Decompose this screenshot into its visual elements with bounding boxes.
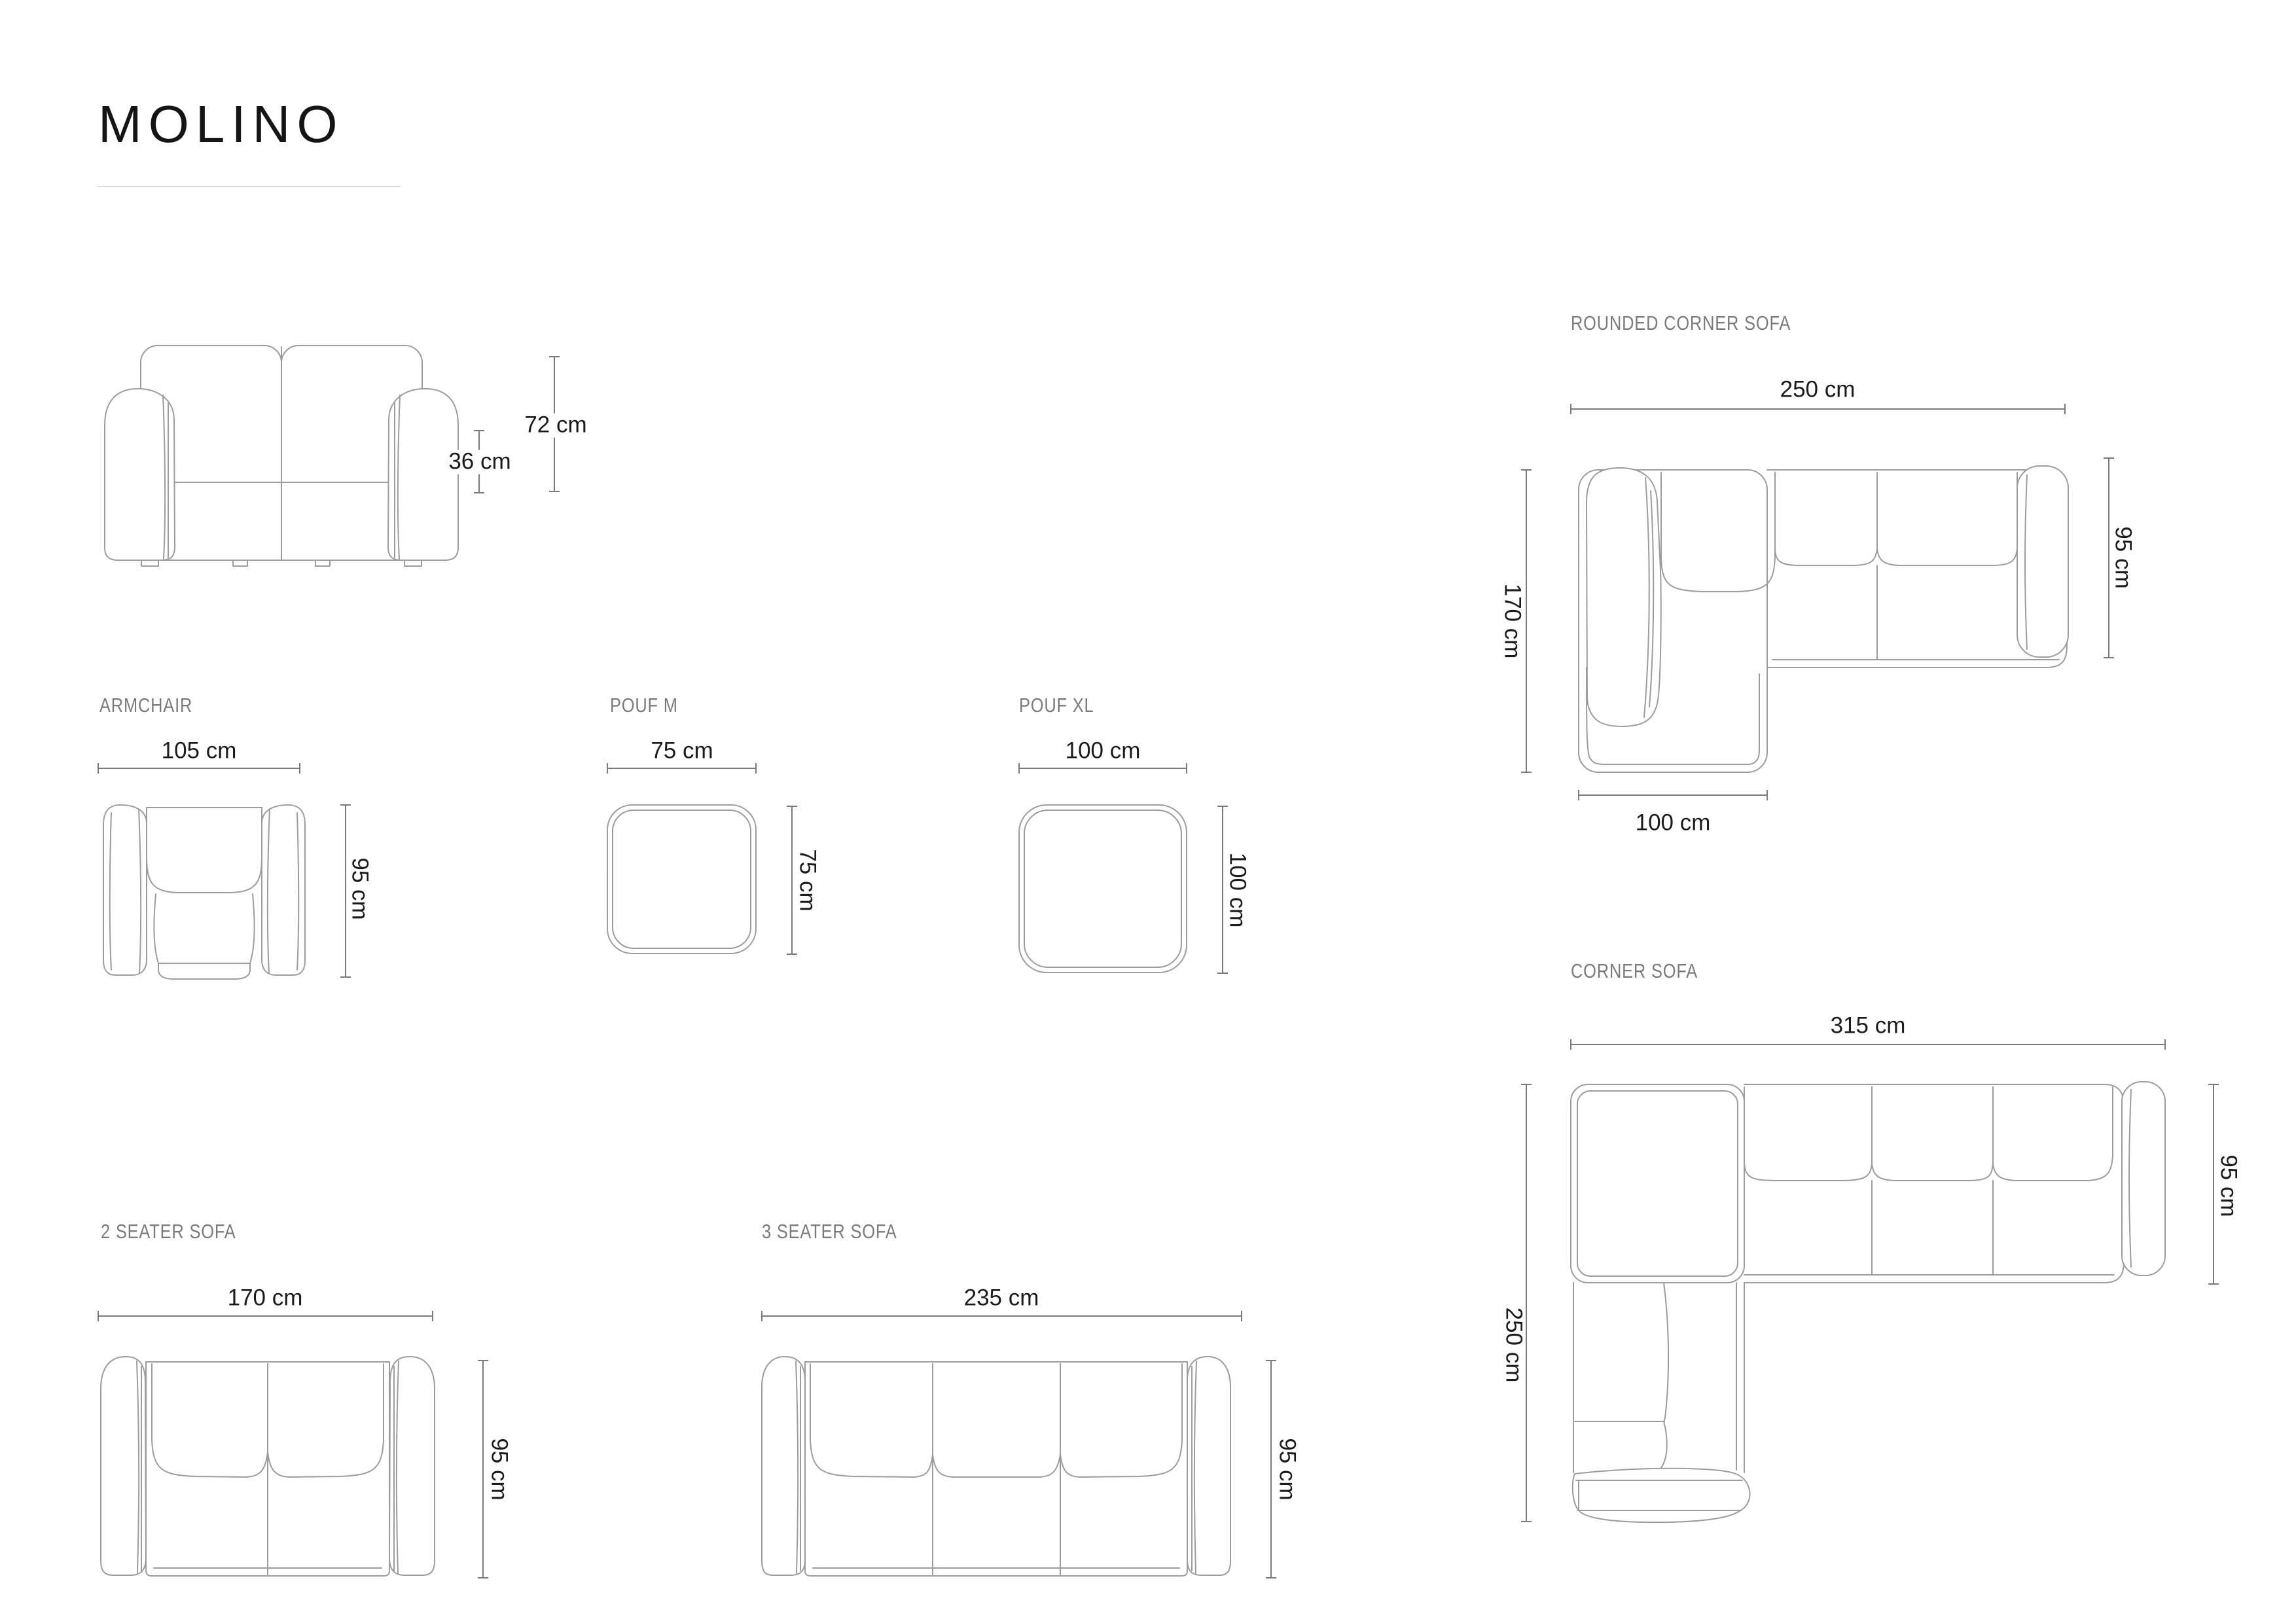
pouf-m-width-dim: 75 cm [645,740,718,764]
front-view-total-height-dim: 72 cm [519,414,592,438]
armchair-art [103,805,305,979]
page-title: MOLINO [98,98,344,151]
front-view-sofa-drawing [98,340,596,569]
two-seater-depth-dim: 95 cm [487,1434,511,1504]
three-seater-width-dim: 235 cm [959,1287,1045,1311]
title-underline [98,186,401,187]
front-view-sofa-art [105,346,458,566]
corner-sofa-side-length-dim: 250 cm [1501,1304,1526,1387]
corner-sofa-label: CORNER SOFA [1571,961,1698,981]
two-seater-sofa-label: 2 SEATER SOFA [101,1221,236,1241]
two-seater-sofa-drawing [92,1283,511,1590]
rounded-corner-sofa-chaise-length-dim: 170 cm [1500,580,1524,663]
pouf-xl-width-dim: 100 cm [1060,740,1146,764]
rounded-corner-sofa-depth-dim: 95 cm [2111,522,2135,592]
three-seater-sofa-drawing [753,1283,1296,1590]
pouf-xl-label: POUF XL [1019,695,1094,715]
pouf-m-label: POUF M [610,695,678,715]
pouf-m-dimension-lines [607,763,797,954]
spec-sheet: MOLINO 36 cm 72 cm ROUNDED CORNER SOFA [0,0,2296,1623]
corner-sofa-art [1571,1082,2165,1522]
rounded-corner-sofa-art [1579,466,2068,772]
pouf-m-art [607,805,756,954]
front-view-seat-height-dim: 36 cm [443,450,516,474]
corner-sofa-width-dim: 315 cm [1825,1014,1911,1039]
corner-sofa-depth-dim: 95 cm [2216,1150,2240,1221]
pouf-xl-depth-dim: 100 cm [1225,849,1249,932]
rounded-corner-sofa-drawing [1505,393,2134,851]
pouf-xl-drawing [1001,740,1263,1001]
three-seater-depth-dim: 95 cm [1275,1434,1299,1504]
rounded-corner-sofa-width-dim: 250 cm [1775,378,1861,402]
armchair-drawing [92,740,373,988]
pouf-xl-dimension-lines [1019,763,1228,973]
pouf-m-depth-dim: 75 cm [795,845,819,915]
armchair-width-dim: 105 cm [156,740,242,764]
armchair-depth-dim: 95 cm [348,853,372,923]
pouf-xl-art [1019,805,1187,972]
armchair-label: ARMCHAIR [99,695,192,715]
corner-sofa-drawing [1499,1008,2245,1623]
two-seater-sofa-art [101,1357,435,1576]
rounded-corner-sofa-label: ROUNDED CORNER SOFA [1571,313,1791,333]
three-seater-sofa-label: 3 SEATER SOFA [762,1221,897,1241]
three-seater-sofa-art [762,1357,1230,1576]
two-seater-width-dim: 170 cm [223,1287,308,1311]
rounded-corner-sofa-chaise-width-dim: 100 cm [1630,811,1716,836]
